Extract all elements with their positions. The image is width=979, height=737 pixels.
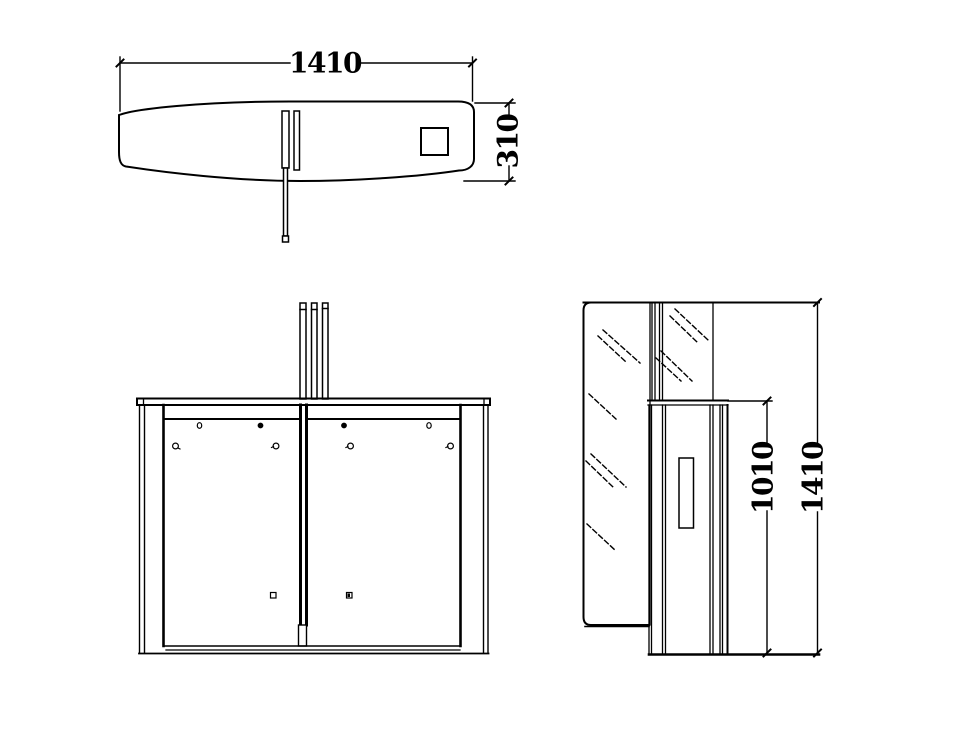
post-cross-section: [421, 128, 448, 155]
side-cabinet-body: [648, 401, 819, 655]
dim-top-width-label: 1410: [289, 47, 362, 80]
bottom-rails: [139, 646, 489, 654]
dim-top-depth-label: 310: [492, 114, 525, 169]
mirror-panel: [584, 303, 651, 627]
dim-side-inner-label: 1010: [747, 441, 780, 514]
side-handle: [679, 458, 694, 528]
mirror-slots: [282, 111, 300, 242]
countertop-front: [137, 399, 490, 406]
carcass-sides: [140, 405, 489, 653]
dim-side-inner: [728, 398, 772, 657]
drawing-canvas: 1410 310: [0, 0, 979, 737]
front-view-drawing: [137, 303, 490, 654]
door-knobs: [271, 593, 353, 599]
mirror-posts: [300, 303, 328, 399]
doors: [164, 405, 461, 646]
hinge-symbols: [173, 423, 454, 449]
dim-side-total-label: 1410: [797, 441, 830, 514]
glass-hatch-marks: [586, 309, 708, 551]
technical-drawing: 1410 310: [0, 0, 979, 737]
top-view-drawing: 1410 310: [117, 47, 525, 243]
side-view-drawing: 1010 1410: [584, 299, 830, 657]
